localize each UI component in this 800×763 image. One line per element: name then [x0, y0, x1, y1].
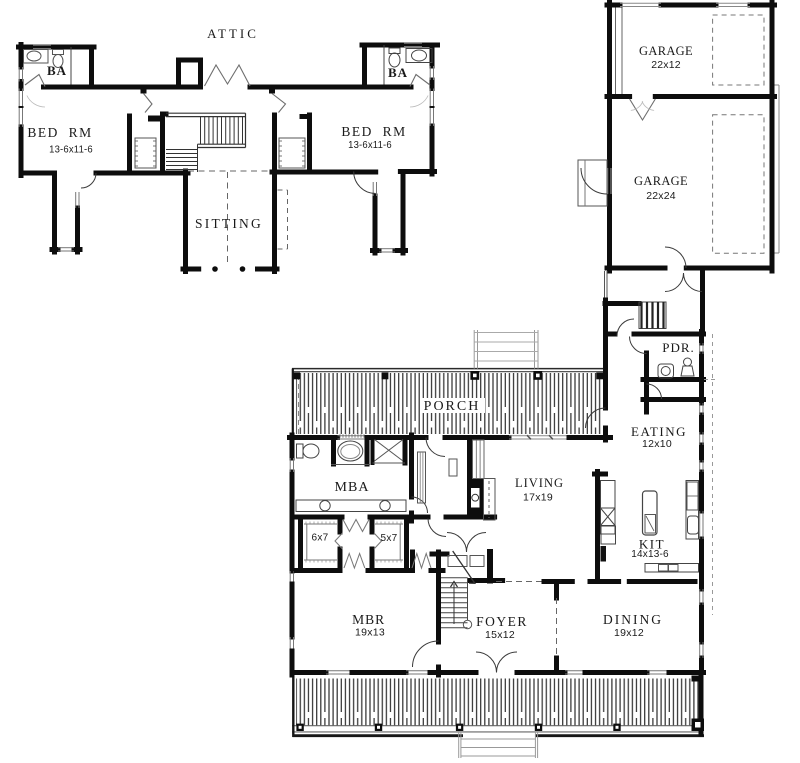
- svg-text:19x13: 19x13: [355, 627, 385, 639]
- svg-text:22x12: 22x12: [651, 59, 681, 71]
- svg-text:14x13-6: 14x13-6: [631, 549, 669, 560]
- svg-text:DINING: DINING: [603, 612, 663, 627]
- svg-text:GARAGE: GARAGE: [639, 44, 693, 58]
- svg-text:SITTING: SITTING: [195, 216, 263, 231]
- svg-text:12x10: 12x10: [642, 438, 672, 450]
- svg-text:FOYER: FOYER: [476, 614, 528, 629]
- svg-text:MBA: MBA: [335, 480, 370, 495]
- svg-text:MBR: MBR: [352, 612, 385, 627]
- svg-text:17x19: 17x19: [523, 492, 553, 504]
- svg-text:22x24: 22x24: [646, 190, 676, 202]
- svg-text:13-6x11-6: 13-6x11-6: [49, 144, 93, 155]
- svg-text:BA: BA: [47, 63, 67, 78]
- svg-text:13-6x11-6: 13-6x11-6: [348, 140, 392, 151]
- svg-text:6x7: 6x7: [311, 533, 328, 544]
- svg-text:15x12: 15x12: [485, 629, 515, 641]
- svg-text:PDR.: PDR.: [662, 340, 695, 355]
- svg-text:ATTIC: ATTIC: [207, 26, 259, 41]
- svg-text:BA: BA: [388, 65, 408, 80]
- svg-text:GARAGE: GARAGE: [634, 174, 688, 188]
- svg-text:LIVING: LIVING: [515, 476, 564, 490]
- svg-text:PORCH: PORCH: [424, 399, 481, 414]
- svg-text:EATING: EATING: [631, 424, 687, 439]
- svg-text:BED RM: BED RM: [341, 124, 406, 139]
- svg-text:BED RM: BED RM: [27, 125, 92, 140]
- svg-text:5x7: 5x7: [380, 533, 397, 544]
- svg-text:19x12: 19x12: [614, 627, 644, 639]
